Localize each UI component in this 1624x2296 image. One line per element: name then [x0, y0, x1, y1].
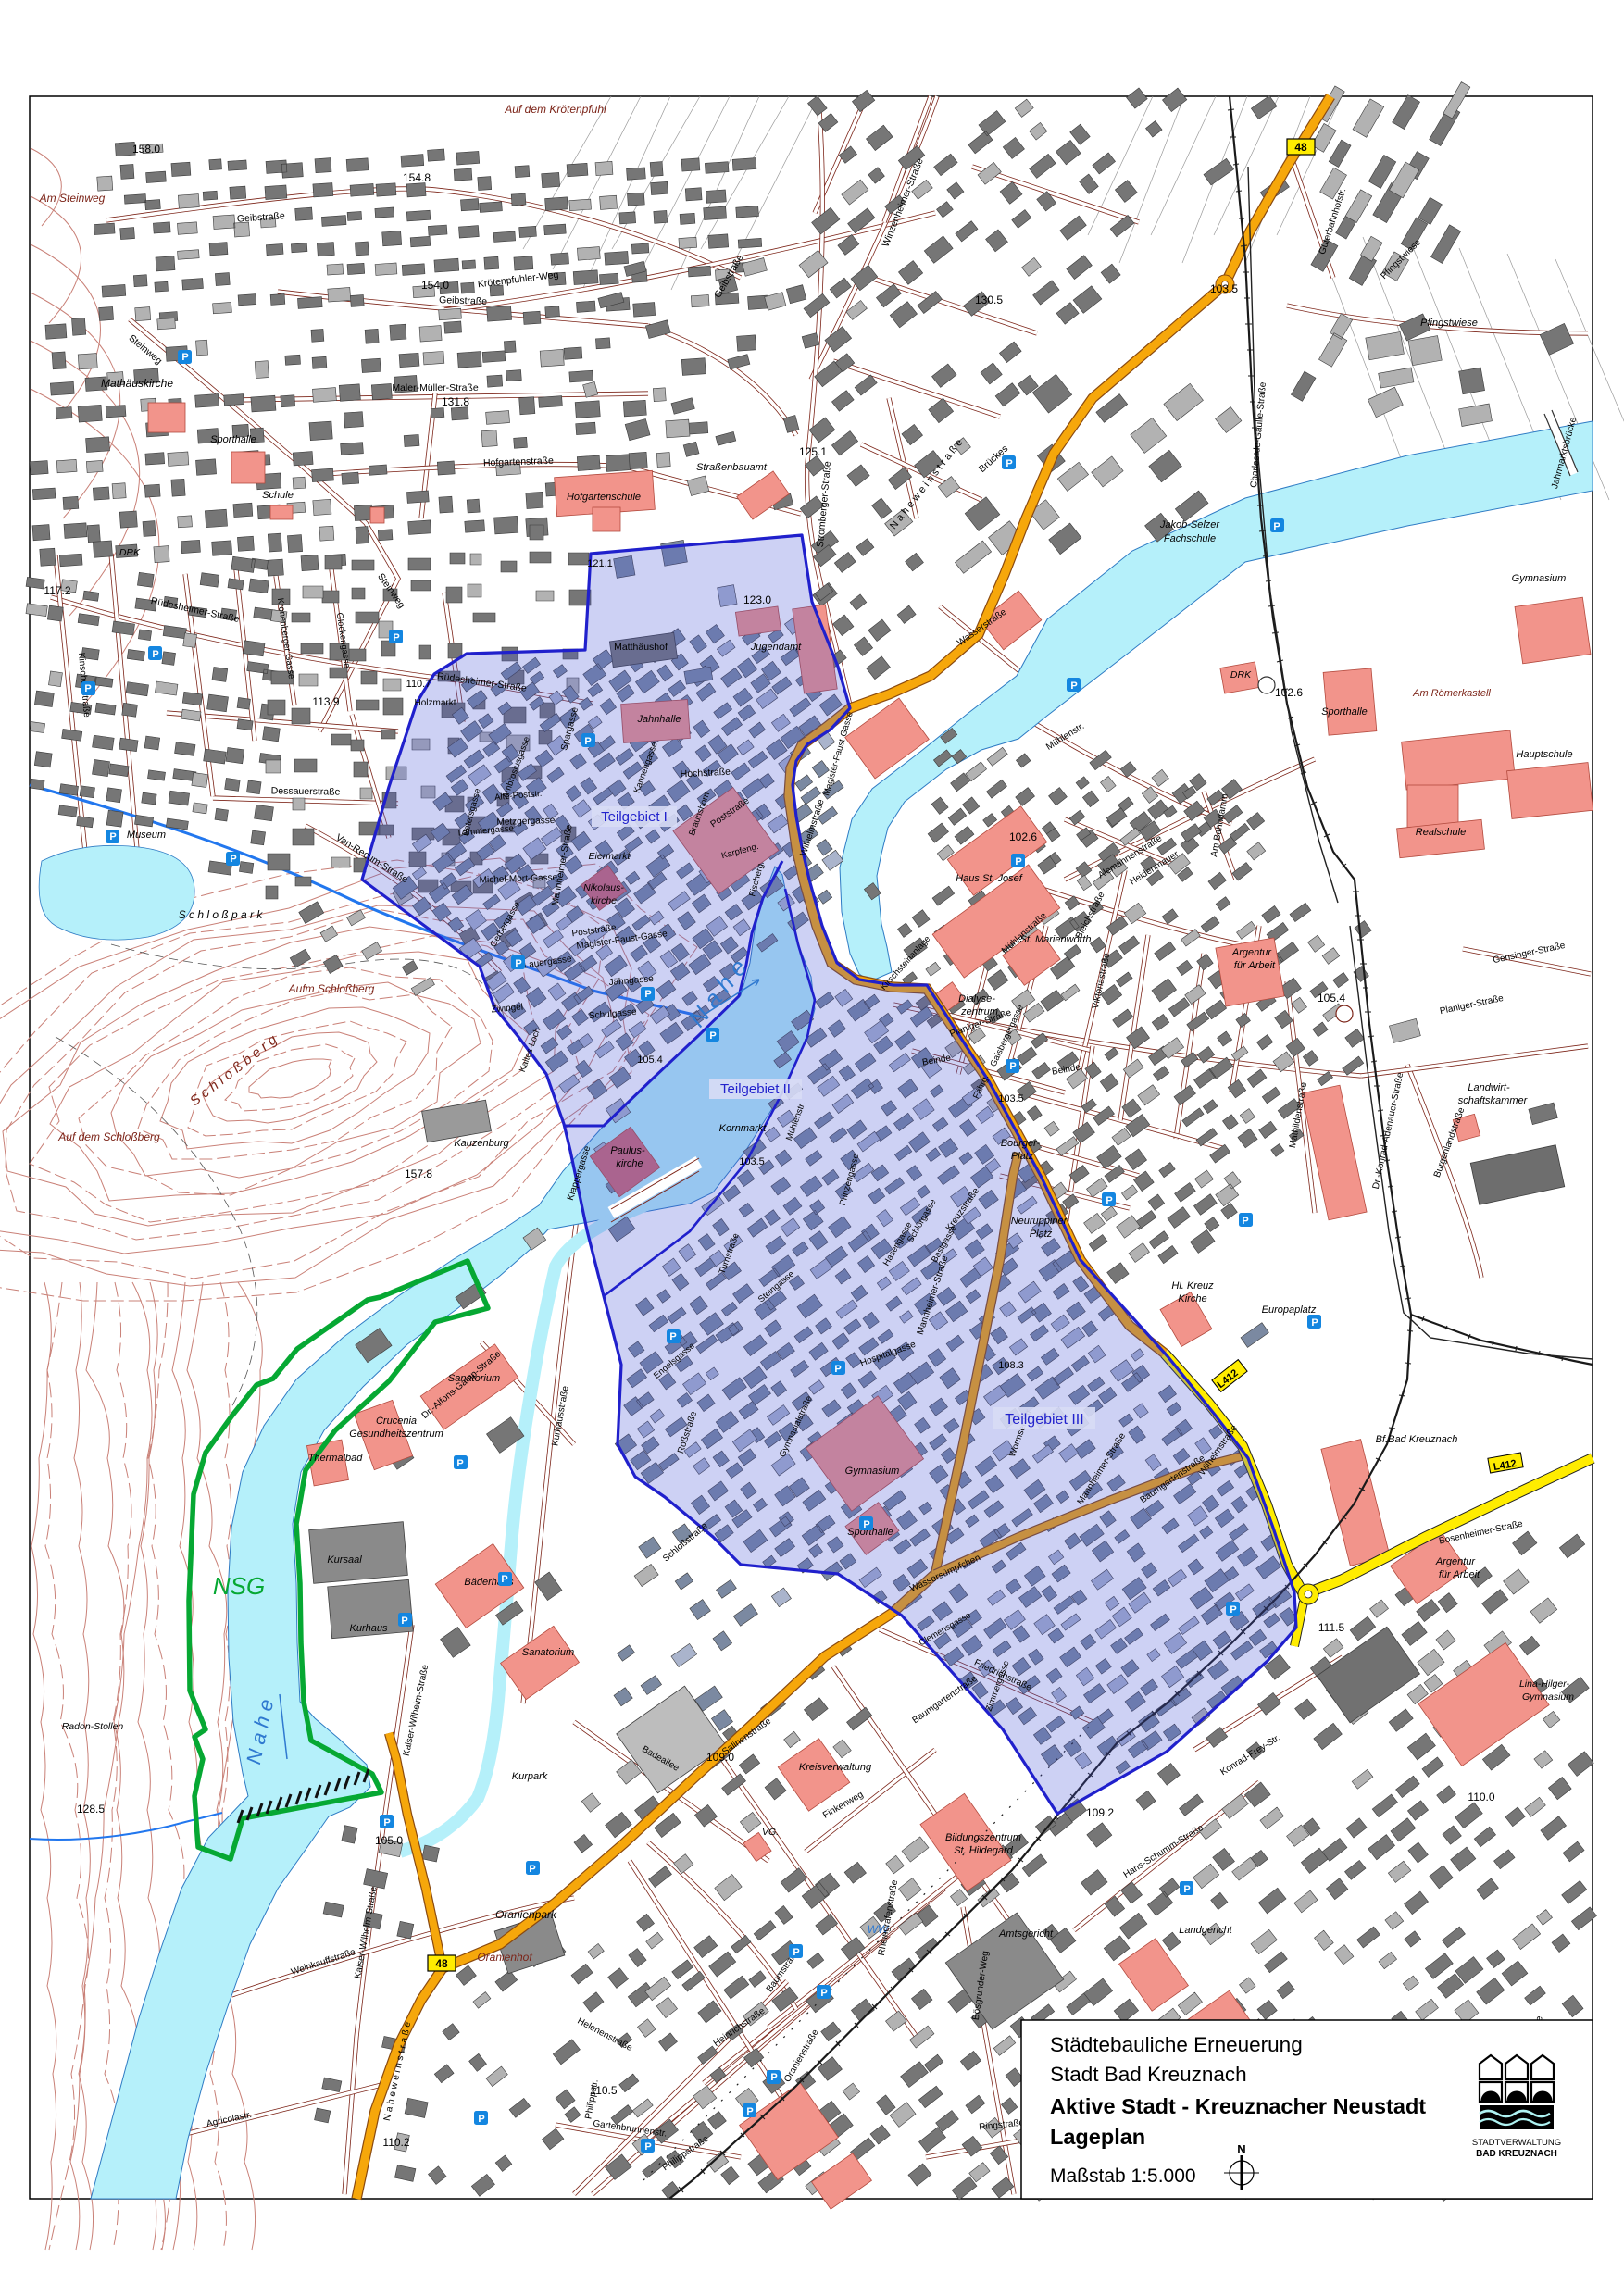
- svg-text:Städtebauliche Erneuerung: Städtebauliche Erneuerung: [1050, 2033, 1303, 2056]
- svg-text:48: 48: [1294, 141, 1307, 154]
- svg-text:Eiermarkt: Eiermarkt: [589, 851, 631, 862]
- svg-text:P: P: [529, 1864, 535, 1875]
- svg-text:Schule: Schule: [262, 490, 294, 501]
- svg-text:Paulus-: Paulus-: [610, 1145, 645, 1156]
- svg-text:154.0: 154.0: [421, 279, 449, 292]
- svg-text:Argentur: Argentur: [1231, 947, 1273, 958]
- svg-text:Aktive Stadt - Kreuznacher Neu: Aktive Stadt - Kreuznacher Neustadt: [1050, 2094, 1426, 2118]
- svg-text:Am Römerkastell: Am Römerkastell: [1412, 688, 1491, 699]
- svg-text:P: P: [456, 1458, 463, 1469]
- svg-text:P: P: [1009, 1061, 1016, 1072]
- svg-text:154.8: 154.8: [403, 171, 431, 184]
- svg-text:105.4: 105.4: [1318, 992, 1345, 1004]
- svg-text:BAD KREUZNACH: BAD KREUZNACH: [1476, 2149, 1557, 2159]
- svg-text:Lageplan: Lageplan: [1050, 2125, 1145, 2149]
- svg-text:P: P: [584, 736, 591, 747]
- svg-text:Straßenbauamt: Straßenbauamt: [696, 462, 768, 473]
- svg-text:P: P: [84, 683, 91, 694]
- svg-text:Teilgebiet III: Teilgebiet III: [1005, 1412, 1083, 1428]
- svg-text:DRK: DRK: [1230, 669, 1252, 680]
- svg-text:123.0: 123.0: [743, 593, 771, 606]
- svg-text:Bourger-: Bourger-: [1001, 1138, 1041, 1149]
- svg-text:P: P: [793, 1947, 799, 1958]
- svg-text:103.5: 103.5: [739, 1156, 765, 1167]
- svg-text:VG.: VG.: [762, 1827, 779, 1838]
- svg-text:Teilgebiet I: Teilgebiet I: [601, 809, 668, 825]
- svg-text:Landgericht: Landgericht: [1179, 1925, 1232, 1936]
- svg-text:Thermalbad: Thermalbad: [308, 1453, 364, 1464]
- svg-text:P: P: [401, 1616, 407, 1627]
- svg-text:111.5: 111.5: [1318, 1621, 1345, 1634]
- svg-text:Oranienpark: Oranienpark: [495, 1908, 557, 1921]
- svg-text:P: P: [709, 1030, 716, 1042]
- svg-text:Maßstab 1:5.000: Maßstab 1:5.000: [1050, 2165, 1196, 2187]
- svg-text:158.0: 158.0: [132, 143, 160, 156]
- svg-text:STADTVERWALTUNG: STADTVERWALTUNG: [1472, 2138, 1561, 2148]
- svg-text:kirche: kirche: [591, 895, 617, 906]
- svg-text:P: P: [230, 854, 236, 865]
- svg-text:Platz: Platz: [1030, 1229, 1053, 1240]
- svg-text:P: P: [1070, 680, 1077, 692]
- svg-text:Kursaal: Kursaal: [327, 1554, 362, 1566]
- svg-text:P: P: [1273, 521, 1280, 532]
- svg-text:Haus St. Josef: Haus St. Josef: [956, 873, 1022, 884]
- svg-text:Argentur: Argentur: [1435, 1556, 1477, 1567]
- svg-text:Kornmarkt: Kornmarkt: [719, 1123, 768, 1134]
- svg-text:Am Steinweg: Am Steinweg: [39, 192, 106, 205]
- svg-text:Amtsgericht: Amtsgericht: [998, 1928, 1054, 1940]
- svg-text:kirche: kirche: [616, 1158, 643, 1169]
- svg-text:Neuruppiner: Neuruppiner: [1011, 1216, 1068, 1227]
- svg-text:Gymnasium: Gymnasium: [1512, 573, 1567, 584]
- svg-text:für Arbeit: für Arbeit: [1234, 960, 1276, 971]
- svg-text:113.9: 113.9: [312, 695, 339, 708]
- svg-text:P: P: [669, 1331, 676, 1342]
- svg-text:schaftskammer: schaftskammer: [1458, 1095, 1529, 1106]
- svg-text:Maler-Müller-Straße: Maler-Müller-Straße: [392, 382, 479, 393]
- svg-text:Geibstraße: Geibstraße: [439, 294, 487, 307]
- svg-text:N: N: [1237, 2142, 1245, 2156]
- svg-text:102.6: 102.6: [1009, 830, 1037, 843]
- svg-text:P: P: [383, 1817, 390, 1828]
- svg-text:121.1: 121.1: [587, 558, 613, 569]
- svg-text:Museum: Museum: [127, 830, 166, 841]
- svg-text:P: P: [1015, 856, 1021, 867]
- svg-text:110.5: 110.5: [590, 2084, 617, 2097]
- svg-text:Bf.Bad Kreuznach: Bf.Bad Kreuznach: [1376, 1434, 1458, 1445]
- svg-text:Kurpark: Kurpark: [512, 1771, 548, 1782]
- svg-text:Fachschule: Fachschule: [1164, 533, 1216, 544]
- svg-text:P: P: [478, 2114, 484, 2125]
- svg-text:Sanatorium: Sanatorium: [522, 1647, 574, 1658]
- svg-text:Hl. Kreuz: Hl. Kreuz: [1171, 1280, 1214, 1291]
- svg-text:P: P: [644, 2141, 651, 2152]
- svg-text:117.2: 117.2: [44, 584, 70, 597]
- svg-text:Oranienhof: Oranienhof: [477, 1951, 533, 1964]
- svg-text:Aufm Schloßberg: Aufm Schloßberg: [288, 982, 375, 995]
- svg-text:105.4: 105.4: [637, 1054, 663, 1066]
- svg-text:Mathäuskirche: Mathäuskirche: [101, 377, 173, 390]
- svg-text:P: P: [746, 2106, 753, 2117]
- svg-text:Dessauerstraße: Dessauerstraße: [271, 785, 341, 797]
- svg-text:P: P: [109, 831, 116, 842]
- svg-text:Hauptschule: Hauptschule: [1516, 749, 1572, 760]
- svg-text:P: P: [393, 632, 399, 643]
- svg-text:102.6: 102.6: [1275, 686, 1303, 699]
- svg-text:109.2: 109.2: [1086, 1806, 1114, 1819]
- svg-text:P: P: [1311, 1317, 1318, 1329]
- svg-text:110.2: 110.2: [382, 2136, 409, 2149]
- svg-text:NSG: NSG: [213, 1572, 265, 1600]
- svg-text:110.7: 110.7: [406, 679, 431, 690]
- svg-text:Jugendamt: Jugendamt: [750, 642, 802, 653]
- svg-text:Bildungszentrum: Bildungszentrum: [945, 1832, 1021, 1843]
- svg-text:Gymnasium: Gymnasium: [1522, 1691, 1574, 1703]
- svg-text:P: P: [181, 352, 188, 363]
- svg-text:Kurhaus: Kurhaus: [350, 1623, 388, 1634]
- svg-text:P: P: [501, 1574, 507, 1585]
- svg-text:103.5: 103.5: [1210, 282, 1238, 295]
- svg-text:Auf dem Schloßberg: Auf dem Schloßberg: [57, 1130, 160, 1143]
- svg-text:P: P: [1183, 1884, 1190, 1895]
- svg-text:P: P: [1242, 1216, 1248, 1227]
- svg-text:Gesundheitszentrum: Gesundheitszentrum: [349, 1429, 443, 1440]
- svg-text:P: P: [770, 2072, 777, 2083]
- svg-text:für Arbeit: für Arbeit: [1439, 1569, 1480, 1580]
- svg-text:103.5: 103.5: [998, 1093, 1024, 1104]
- svg-text:Landwirt-: Landwirt-: [1468, 1082, 1510, 1093]
- svg-text:Dialyse-: Dialyse-: [958, 993, 995, 1004]
- svg-text:Sporthalle: Sporthalle: [210, 434, 256, 445]
- svg-text:157.8: 157.8: [405, 1167, 432, 1180]
- svg-text:110.0: 110.0: [1468, 1791, 1494, 1803]
- svg-text:Stadt Bad Kreuznach: Stadt Bad Kreuznach: [1050, 2063, 1247, 2086]
- svg-text:Crucenia: Crucenia: [376, 1416, 417, 1427]
- svg-text:P: P: [515, 958, 521, 969]
- svg-text:130.5: 130.5: [975, 293, 1003, 306]
- svg-text:108.3: 108.3: [998, 1360, 1024, 1371]
- svg-text:48: 48: [435, 1957, 448, 1970]
- svg-text:Europaplatz: Europaplatz: [1262, 1304, 1317, 1316]
- svg-text:Lina-Hilger-: Lina-Hilger-: [1519, 1678, 1570, 1690]
- svg-text:P: P: [1230, 1604, 1236, 1616]
- svg-text:Auf dem Krötenpfuhl: Auf dem Krötenpfuhl: [504, 103, 606, 116]
- svg-text:128.5: 128.5: [77, 1803, 105, 1816]
- svg-text:P: P: [1106, 1195, 1112, 1206]
- svg-text:St. Hildegard: St. Hildegard: [954, 1845, 1013, 1856]
- svg-text:P: P: [644, 989, 651, 1000]
- svg-text:DRK: DRK: [119, 547, 141, 558]
- svg-text:Sporthalle: Sporthalle: [1321, 706, 1368, 717]
- svg-text:Kirche: Kirche: [1178, 1293, 1206, 1304]
- svg-text:P: P: [152, 649, 158, 660]
- svg-text:Realschule: Realschule: [1416, 827, 1466, 838]
- svg-text:Teilgebiet II: Teilgebiet II: [720, 1081, 791, 1097]
- svg-text:Jahnhalle: Jahnhalle: [636, 714, 681, 725]
- svg-text:Platz: Platz: [1011, 1151, 1034, 1162]
- svg-text:Matthäushof: Matthäushof: [614, 642, 668, 653]
- svg-text:105.0: 105.0: [375, 1834, 403, 1847]
- svg-text:Kreisverwaltung: Kreisverwaltung: [799, 1762, 872, 1773]
- svg-text:P: P: [863, 1519, 869, 1530]
- svg-text:Gymnasium: Gymnasium: [845, 1466, 900, 1477]
- svg-text:Holzmarkt: Holzmarkt: [414, 698, 456, 708]
- svg-text:Jakob-Selzer: Jakob-Selzer: [1159, 519, 1221, 530]
- svg-text:P: P: [1006, 458, 1012, 469]
- svg-text:Kauzenburg: Kauzenburg: [454, 1138, 509, 1149]
- svg-text:Radon-Stollen: Radon-Stollen: [62, 1721, 124, 1732]
- svg-text:P: P: [820, 1988, 827, 1999]
- svg-text:Nikolaus-: Nikolaus-: [583, 882, 624, 893]
- svg-text:125.1: 125.1: [799, 445, 827, 458]
- svg-text:Hofgartenschule: Hofgartenschule: [567, 492, 641, 503]
- svg-text:131.8: 131.8: [442, 395, 469, 408]
- svg-text:Pfingstwiese: Pfingstwiese: [1420, 318, 1478, 329]
- svg-text:S c h l o ß p a r k: S c h l o ß p a r k: [179, 908, 264, 921]
- svg-text:P: P: [834, 1364, 841, 1375]
